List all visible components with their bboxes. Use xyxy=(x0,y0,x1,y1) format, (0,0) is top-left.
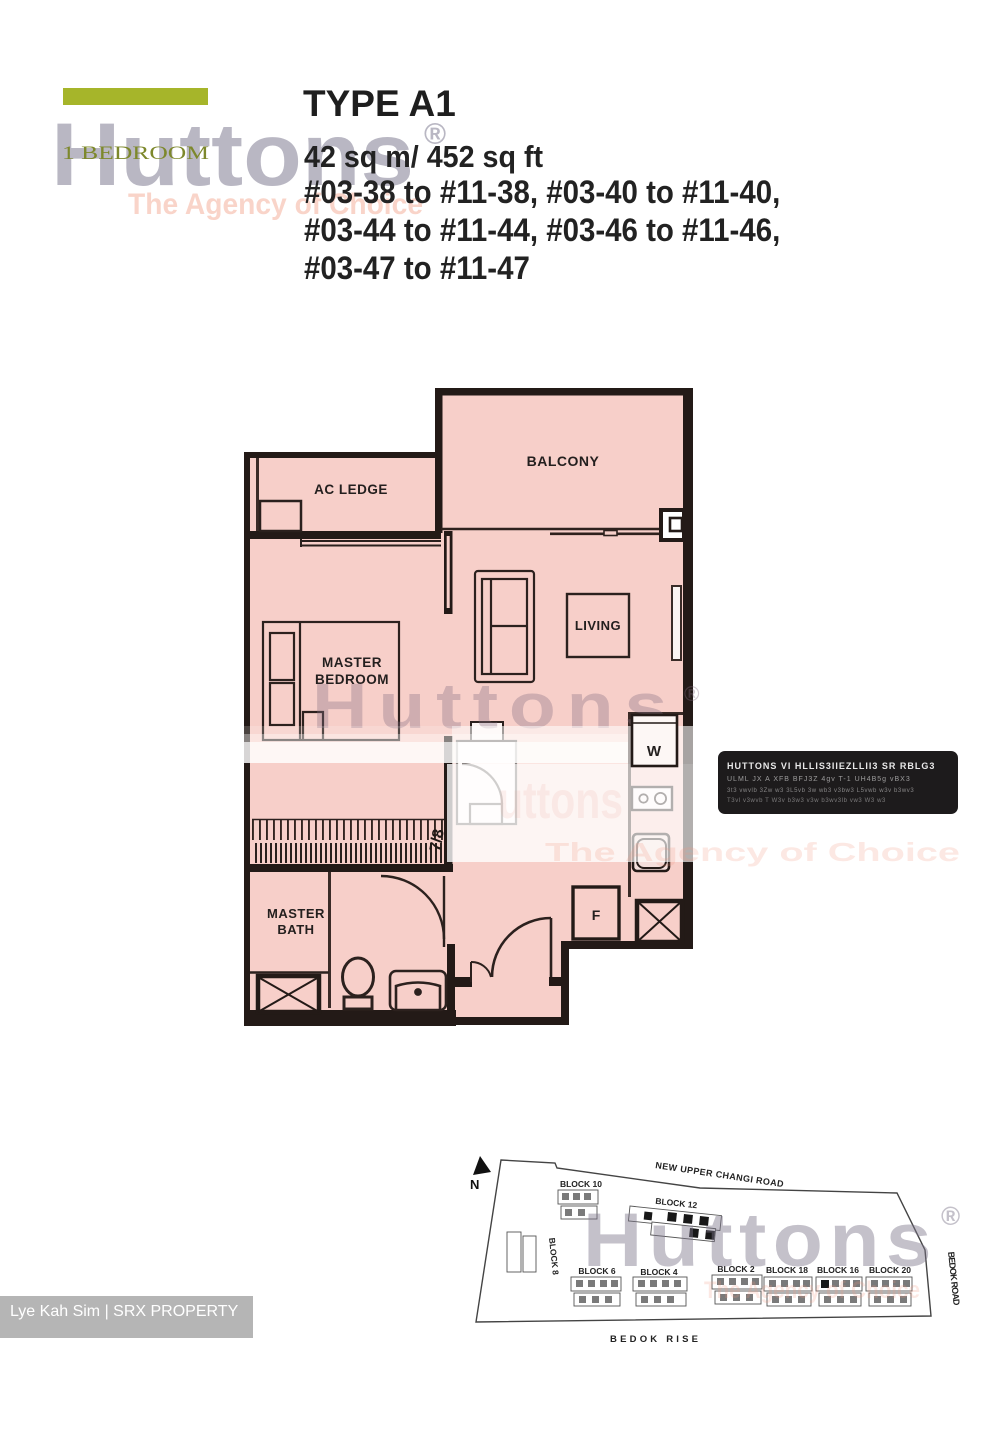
svg-text:BATH: BATH xyxy=(277,922,314,937)
svg-text:MASTER: MASTER xyxy=(267,906,325,921)
svg-text:AC LEDGE: AC LEDGE xyxy=(314,482,388,497)
svg-text:The Agency of Choice: The Agency of Choice xyxy=(545,837,960,867)
svg-text:BEDOK RISE: BEDOK RISE xyxy=(610,1334,698,1345)
svg-text:Huttons: Huttons xyxy=(583,1198,938,1283)
svg-text:MASTER: MASTER xyxy=(322,655,382,670)
svg-text:1 BEDROOM: 1 BEDROOM xyxy=(62,143,209,164)
svg-text:N: N xyxy=(470,1177,479,1192)
svg-text:uttons: uttons xyxy=(498,772,623,830)
svg-text:F: F xyxy=(592,907,601,923)
svg-text:W: W xyxy=(647,743,662,760)
svg-text:BALCONY: BALCONY xyxy=(527,453,600,469)
svg-text:®: ® xyxy=(941,1201,960,1231)
svg-text:LIVING: LIVING xyxy=(575,618,621,633)
svg-text:The Agency of Choice: The Agency of Choice xyxy=(704,1277,920,1304)
svg-text:®: ® xyxy=(684,683,700,706)
